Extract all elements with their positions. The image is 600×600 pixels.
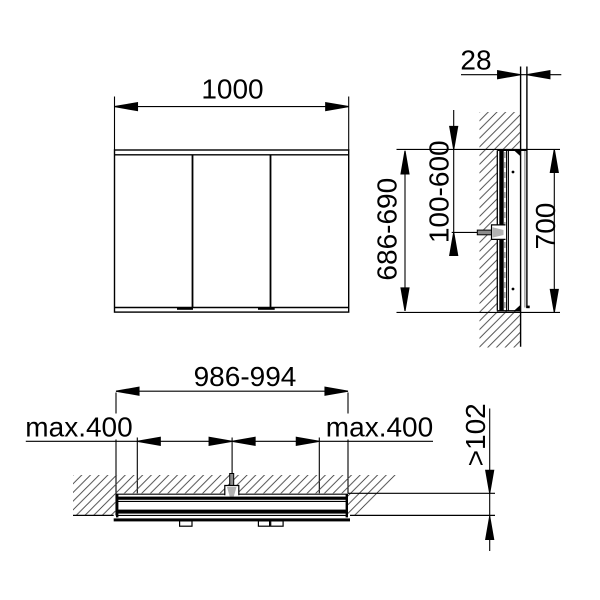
svg-text:100-600: 100-600 xyxy=(423,140,454,243)
svg-text:700: 700 xyxy=(530,203,561,250)
svg-text:max.400: max.400 xyxy=(25,411,132,442)
svg-text:max.400: max.400 xyxy=(326,411,433,442)
svg-text:28: 28 xyxy=(460,44,491,75)
svg-text:986-994: 986-994 xyxy=(194,361,297,392)
svg-text:1000: 1000 xyxy=(201,73,263,104)
svg-text:>102: >102 xyxy=(460,403,491,466)
svg-text:686-690: 686-690 xyxy=(372,178,403,281)
